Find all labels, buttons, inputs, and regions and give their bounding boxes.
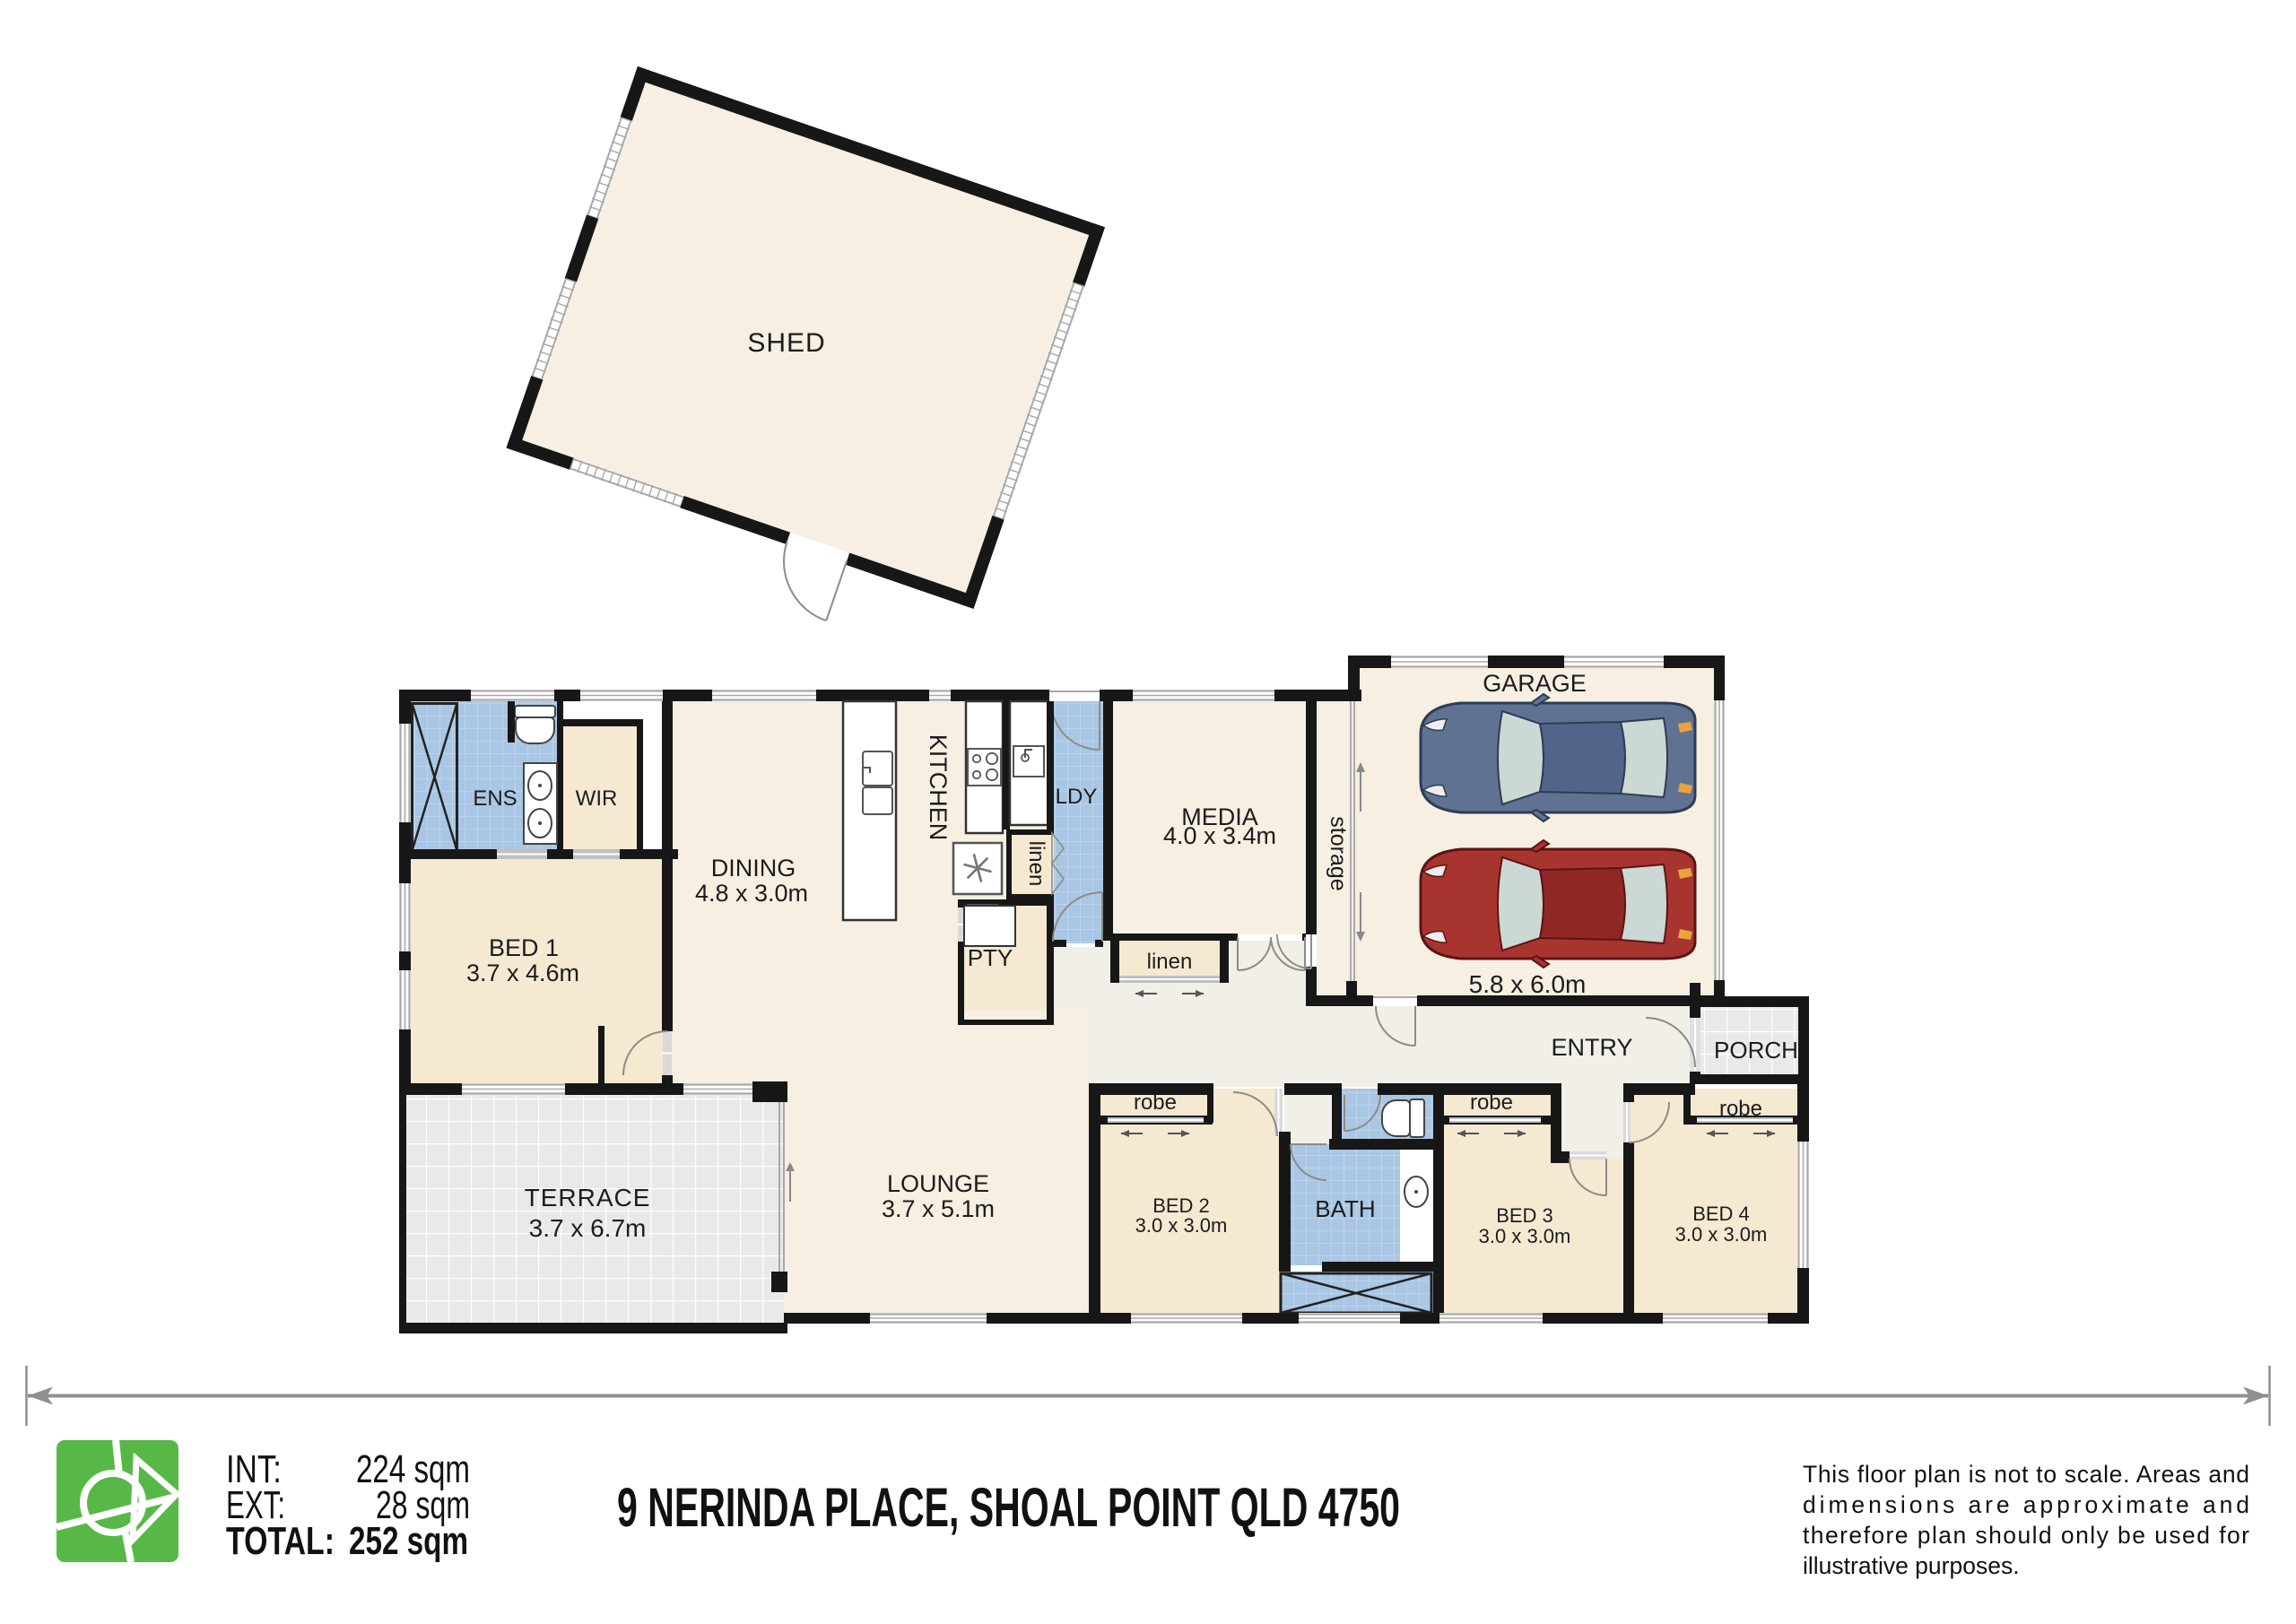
svg-text:TERRACE: TERRACE [525,1184,651,1211]
svg-text:KITCHEN: KITCHEN [925,734,952,841]
svg-text:3.0 x 3.0m: 3.0 x 3.0m [1675,1223,1768,1246]
svg-text:BATH: BATH [1315,1195,1375,1222]
svg-text:ENTRY: ENTRY [1551,1034,1632,1061]
svg-text:PORCH: PORCH [1714,1037,1798,1064]
svg-text:PTY: PTY [968,944,1013,971]
svg-text:9 NERINDA PLACE, SHOAL POINT Q: 9 NERINDA PLACE, SHOAL POINT QLD 4750 [617,1477,1400,1538]
svg-text:robe: robe [1470,1090,1513,1115]
svg-text:4.8 x 3.0m: 4.8 x 3.0m [695,880,808,907]
svg-text:SHED: SHED [747,328,825,358]
svg-text:robe: robe [1719,1097,1762,1121]
svg-text:3.0 x 3.0m: 3.0 x 3.0m [1135,1214,1228,1237]
svg-text:BED 4: BED 4 [1692,1203,1750,1225]
svg-text:linen: linen [1024,841,1048,887]
svg-text:3.7 x 6.7m: 3.7 x 6.7m [529,1214,647,1242]
svg-text:BED 1: BED 1 [489,934,559,961]
svg-text:linen: linen [1147,950,1193,974]
svg-text:TOTAL:: TOTAL: [226,1519,335,1563]
svg-text:3.7 x 4.6m: 3.7 x 4.6m [466,960,579,986]
svg-text:3.0 x 3.0m: 3.0 x 3.0m [1479,1225,1571,1247]
svg-text:4.0 x 3.4m: 4.0 x 3.4m [1163,822,1276,849]
svg-text:5.8 x 6.0m: 5.8 x 6.0m [1469,970,1587,998]
svg-text:BED 3: BED 3 [1496,1204,1553,1227]
svg-text:LDY: LDY [1056,785,1098,809]
svg-text:3.7 x 5.1m: 3.7 x 5.1m [882,1195,995,1222]
svg-text:robe: robe [1134,1090,1177,1115]
svg-text:ENS: ENS [473,786,517,811]
svg-text:GARAGE: GARAGE [1483,670,1587,697]
svg-text:252 sqm: 252 sqm [349,1519,468,1563]
svg-text:storage: storage [1326,816,1351,890]
svg-text:LOUNGE: LOUNGE [887,1170,989,1197]
svg-text:DINING: DINING [711,855,796,881]
svg-text:WIR: WIR [576,786,618,811]
